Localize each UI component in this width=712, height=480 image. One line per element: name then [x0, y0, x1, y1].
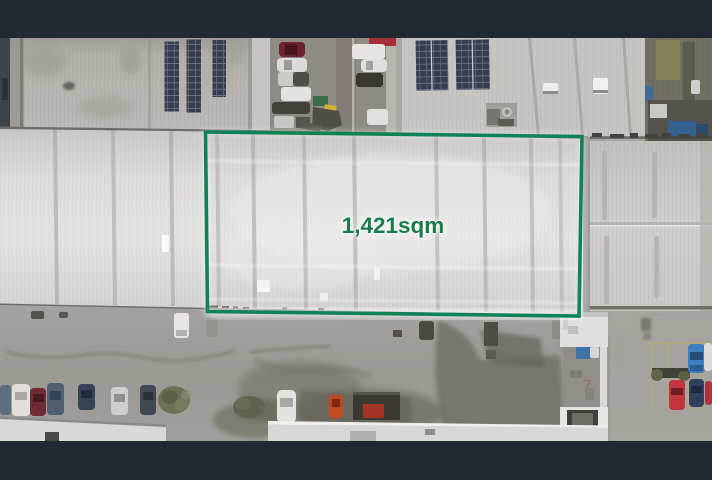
svg-text:1,421sqm: 1,421sqm	[342, 213, 445, 238]
